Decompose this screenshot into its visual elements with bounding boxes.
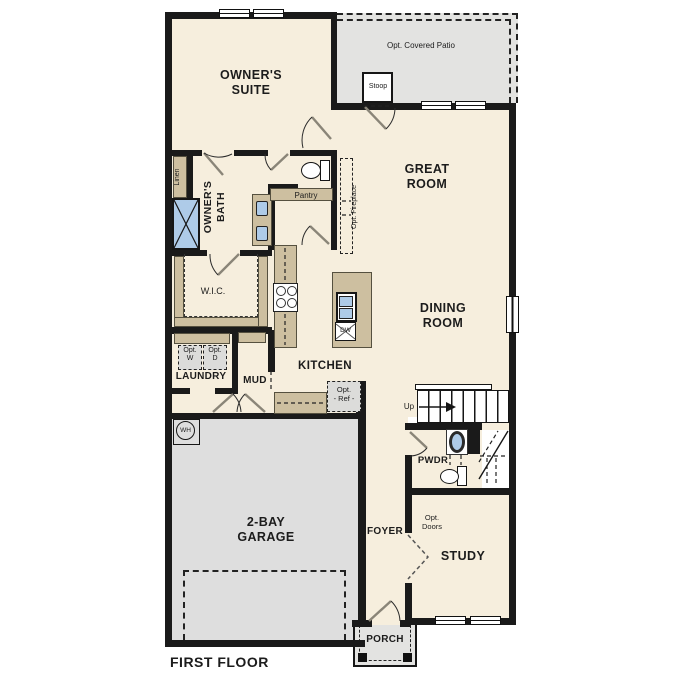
first-floor-title: FIRST FLOOR [170,654,310,671]
wall-stair-bottom [405,423,482,430]
opt-doors-label: Opt. Doors [412,513,452,531]
covered-patio-label: Opt. Covered Patio [351,41,491,51]
kitchen-counter-south [274,392,327,414]
island-sink-basin-2 [339,308,353,319]
wall-laundry-bottom-a [165,388,190,394]
vanity-sink-2 [256,226,268,241]
mud-bench [238,332,266,343]
porch-label: PORCH [350,634,420,646]
foyer-label: FOYER [350,526,420,538]
wic-shelf-right [258,256,268,327]
wall-pwdr-study [405,488,516,495]
island-sink-basin-1 [339,296,353,307]
wall-garage-right [358,413,366,627]
opt-washer-label: Opt. W [178,347,202,364]
pwdr-sink [449,431,465,453]
pantry-label: Pantry [276,191,336,201]
dishwasher-label: DW [335,327,356,335]
owners-suite-label: OWNER'S SUITE [181,68,321,98]
wall-linen-side [187,156,193,200]
laundry-shelf [174,333,230,344]
opt-ref-label: Opt. - Ref - [327,385,361,403]
dining-room-label: DINING ROOM [383,301,503,331]
wall-foyer-bottom-left [352,620,372,627]
stove-burner-3 [276,298,286,308]
stoop-label: Stoop [360,83,396,91]
stairs-landing-edge [415,384,492,390]
water-heater-label: WH [176,427,195,435]
wall-garage-bottom [165,640,365,647]
opt-dryer-label: Opt. D [203,347,227,364]
wall-laundry-bottom-b [215,388,238,394]
window-greatroom-2 [455,101,486,110]
owners-bath-label: OWNER'S BATH [202,167,242,247]
up-label: Up [401,402,417,412]
kitchen-label: KITCHEN [265,360,385,374]
opt-fireplace-label: Opt. Fireplace [351,167,365,247]
toilet-owners-bowl [301,162,321,179]
understair-area [482,430,509,488]
stove-burner-4 [287,298,297,308]
stove-burner-2 [287,286,297,296]
wall-top [165,12,337,19]
window-study-2 [470,616,501,625]
mud-label: MUD [235,375,275,387]
wall-hall-b [234,150,268,156]
garage-label: 2-BAY GARAGE [196,515,336,545]
window-suite-1 [219,9,250,18]
pwdr-label: PWDR [408,455,458,466]
wic-label: W.I.C. [183,286,243,297]
wall-hall-c [290,150,337,156]
study-label: STUDY [403,549,523,564]
stove-burner-1 [276,286,286,296]
garage-door-dashed-line [183,570,346,640]
linen-label: Linen [174,152,186,202]
window-suite-2 [253,9,284,18]
porch-post-right [403,653,412,662]
laundry-label: LAUNDRY [166,371,236,383]
window-greatroom-1 [421,101,452,110]
wall-right [509,103,516,625]
floor-plan: Stoop [0,0,687,687]
wall-pwdr-west-b [405,583,412,625]
wall-suite-right [331,12,337,108]
wic-shelf-bottom [174,317,268,327]
porch-post-left [358,653,367,662]
great-room-label: GREAT ROOM [367,162,487,192]
stairs [417,390,509,423]
window-dining [506,296,519,333]
toilet-pwdr-bowl [440,469,459,484]
toilet-owners-tank [320,160,330,181]
window-study-1 [435,616,466,625]
vanity-sink-1 [256,201,268,216]
shower [172,198,200,250]
